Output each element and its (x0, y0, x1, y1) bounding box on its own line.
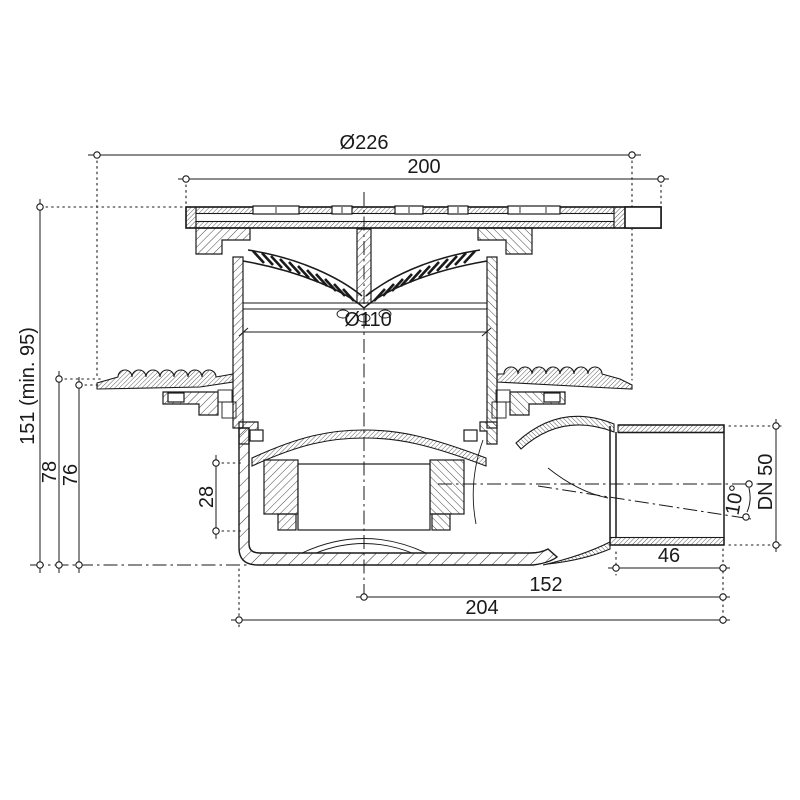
dim-angle-10: 10° (722, 481, 753, 520)
dim-label-dn50: DN 50 (755, 454, 777, 511)
top-grating-plate (186, 206, 661, 228)
dim-label-110: Ø110 (344, 309, 391, 331)
seal-insert-right (430, 460, 464, 514)
dim-width-200: 200 (178, 156, 669, 182)
dim-label-204: 204 (465, 597, 498, 619)
dim-dn50: DN 50 (755, 419, 779, 552)
dim-length-204: 204 (231, 597, 730, 623)
pipe-top-wall (618, 425, 724, 433)
dim-label-10deg: 10° (722, 483, 749, 517)
dim-label-28: 28 (196, 486, 218, 508)
dim-label-78: 78 (39, 461, 61, 483)
dim-length-46: 46 (608, 545, 730, 571)
dim-label-226: Ø226 (340, 132, 389, 154)
dim-height-151: 151 (min. 95) (17, 199, 43, 573)
drawing-canvas: Ø226 200 Ø110 151 (min. 95) 78 76 (0, 0, 800, 800)
dim-diameter-226: Ø226 (88, 132, 641, 158)
clamping-flange-right (492, 367, 632, 418)
dim-label-152: 152 (529, 574, 562, 596)
pipe-bottom-wall (610, 538, 724, 546)
dim-label-76: 76 (60, 464, 82, 486)
clamping-flange-left (97, 370, 236, 418)
dim-label-200: 200 (407, 156, 440, 178)
drain-body (97, 206, 724, 565)
outlet-assembly (500, 416, 724, 565)
dim-height-28: 28 (196, 455, 219, 539)
seal-insert-left (264, 460, 298, 514)
dim-label-151: 151 (min. 95) (17, 327, 39, 445)
dim-label-46: 46 (658, 545, 680, 567)
dim-length-152: 152 (356, 574, 730, 600)
dim-diameter-110: Ø110 (239, 309, 491, 336)
technical-drawing-floor-drain: Ø226 200 Ø110 151 (min. 95) 78 76 (0, 0, 800, 800)
dim-height-78: 78 (39, 371, 62, 573)
dim-height-76: 76 (60, 377, 82, 573)
